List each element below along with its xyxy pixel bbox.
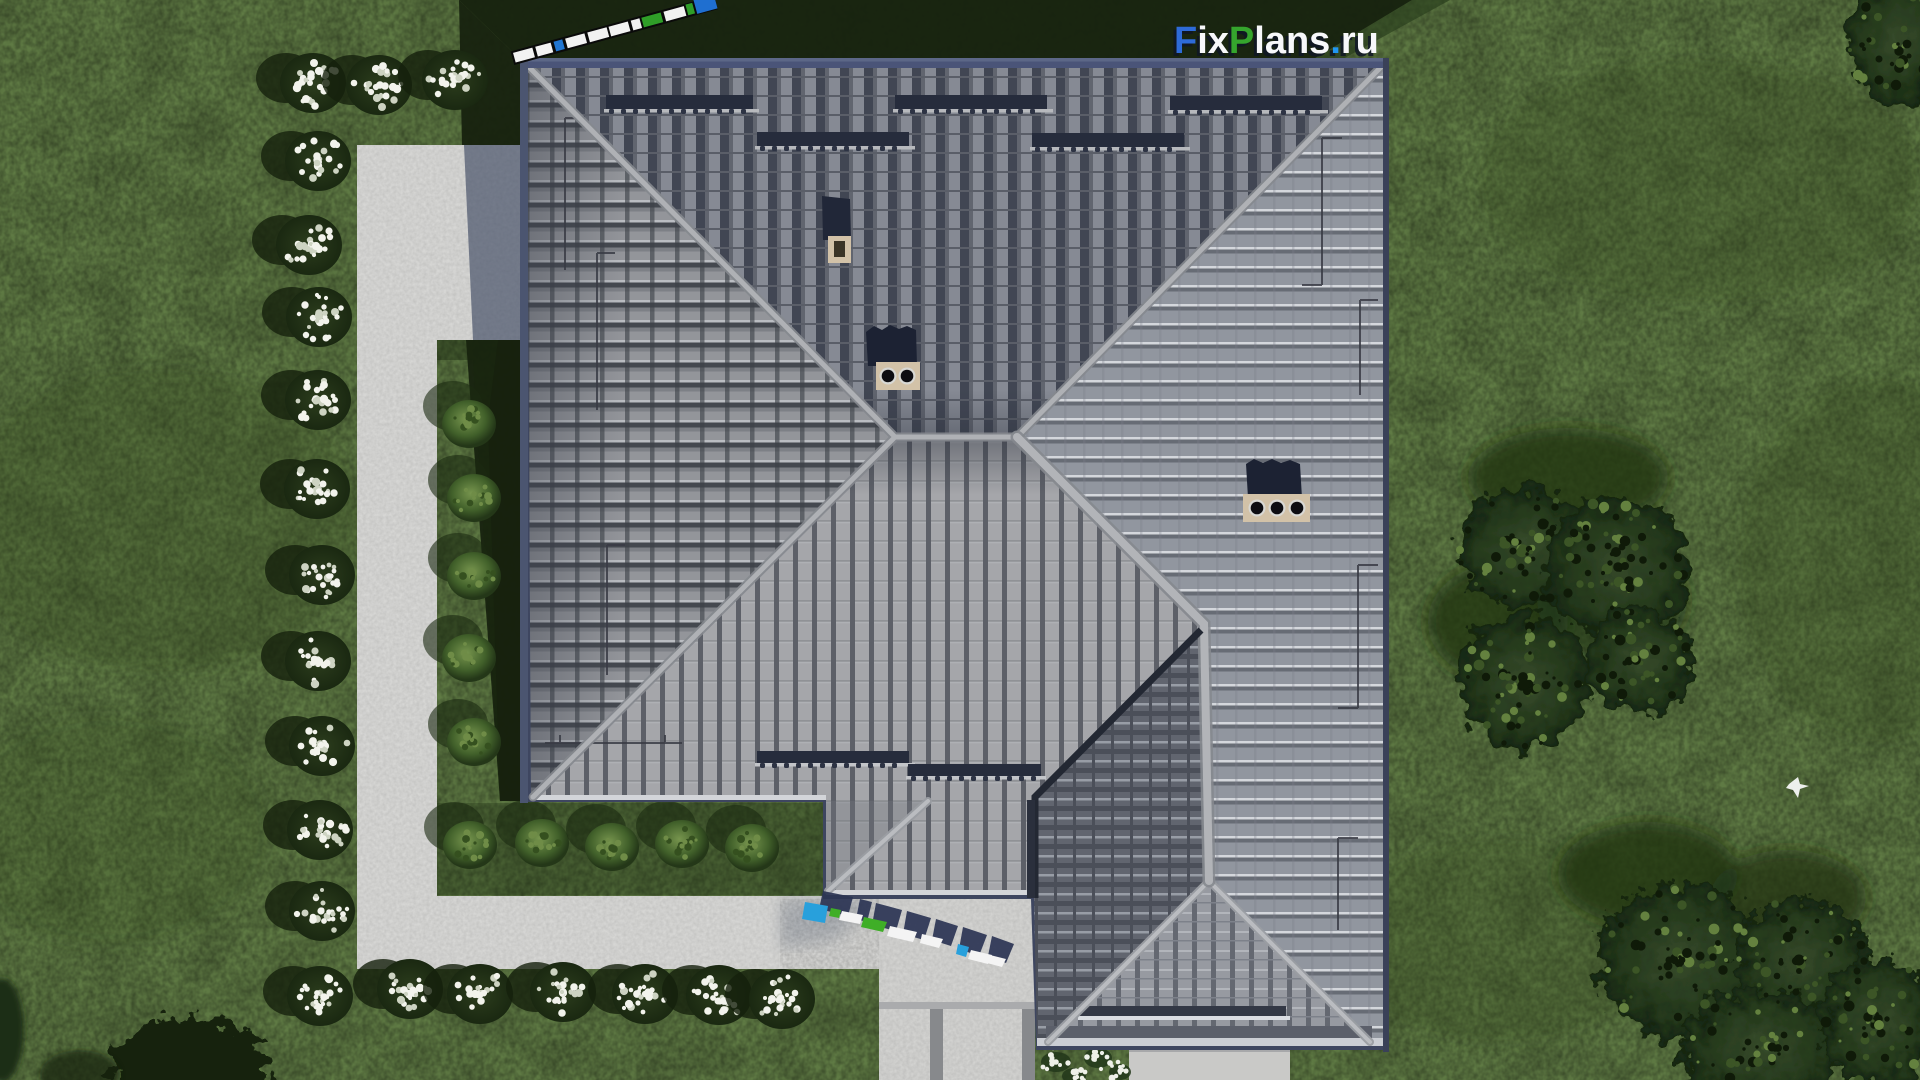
svg-text:FixPlans.ru: FixPlans.ru xyxy=(1174,20,1379,62)
